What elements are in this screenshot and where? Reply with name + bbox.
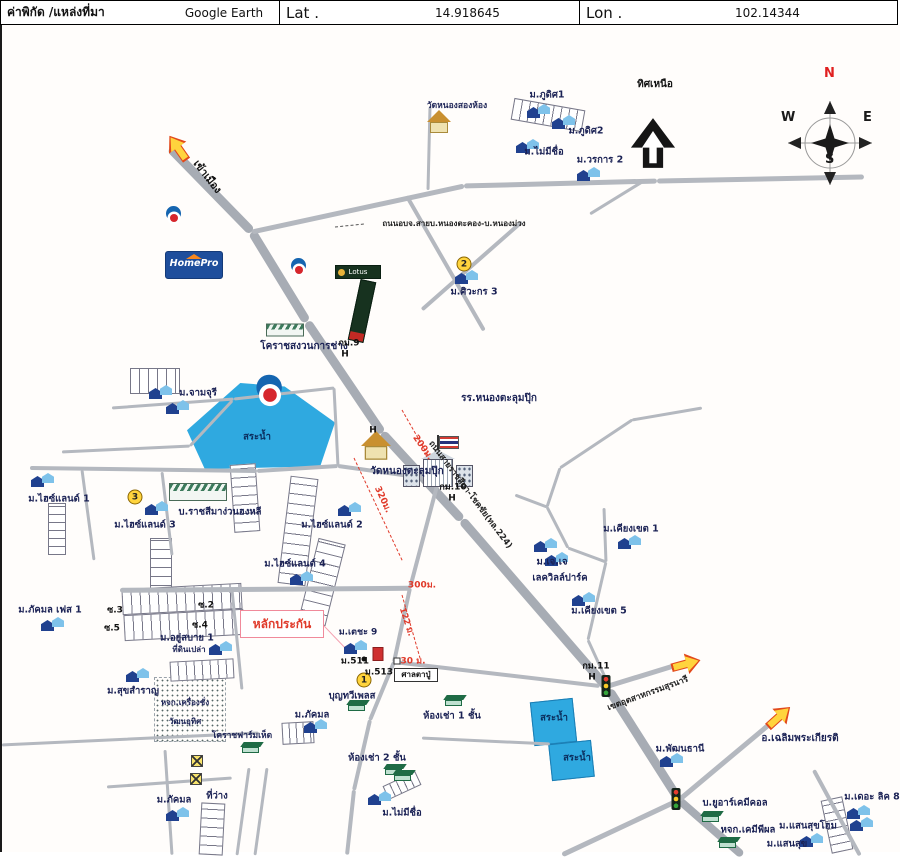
map-label: ม.อยู่สบาย 1 — [160, 633, 214, 643]
factory-icon — [266, 324, 304, 337]
map-road — [333, 388, 340, 466]
transformer-icon — [190, 773, 202, 785]
homepro-logo: HomePro — [165, 251, 223, 279]
map-label: ม.สุขสำราญ — [107, 686, 159, 696]
map-label: ม.ไฮซ์แลนด์ 1 — [28, 494, 89, 504]
map-road — [589, 181, 643, 216]
traffic-light-icon — [602, 675, 611, 697]
map-label: ม.เจ.เจ — [536, 557, 567, 567]
map-label: วัฒนอุทิศ — [169, 718, 201, 726]
red-building-icon — [373, 647, 384, 661]
map-label: ม.เตชะ 9 — [339, 629, 378, 638]
houses-icon — [41, 617, 67, 631]
north-direction-icon — [630, 117, 676, 173]
thai-flag-icon — [439, 436, 459, 449]
houses-icon — [572, 592, 598, 606]
map-label: บ.ราชสีมาง่วนฮงหลี — [179, 507, 262, 517]
coordinates-header: ค่าพิกัด /แหล่งที่มา Google Earth Lat . … — [0, 0, 898, 25]
houses-icon — [344, 640, 370, 654]
map-label: หลักประกัน — [253, 618, 312, 630]
houses-icon — [304, 719, 330, 733]
map-label: ถนนอบจ.สายบ.หนองตะคอง-บ.หนองม่วง — [382, 220, 525, 228]
map-label: ม.ไม่มีชื่อ — [382, 808, 421, 818]
ptt-flame-icon — [255, 370, 286, 411]
map-road — [107, 777, 232, 789]
houses-icon — [290, 571, 316, 585]
ptt-flame-icon — [290, 255, 308, 279]
map-label: เลควิลล์ปาร์ค — [532, 573, 587, 583]
map-road — [62, 445, 190, 454]
map-road — [546, 468, 562, 508]
coords-source-label: ค่าพิกัด /แหล่งที่มา — [1, 1, 169, 24]
map-label: ที่ดินเปล่า — [172, 646, 205, 654]
direction-arrow-icon — [160, 129, 197, 167]
map-label: ศาลตาปู่ — [401, 671, 430, 679]
map-label: 320ม. — [372, 485, 392, 514]
map-road — [514, 494, 547, 509]
houses-icon — [455, 270, 481, 284]
map-label: H — [588, 674, 596, 683]
lotus-sign-post — [348, 279, 377, 343]
map-label: ม.511 — [341, 658, 369, 667]
map-road — [603, 508, 608, 562]
map-label: กม.9 — [338, 340, 359, 349]
map-label: H — [369, 427, 377, 436]
factory-icon — [169, 483, 227, 501]
map-label: ม.ภูดิศ1 — [530, 90, 565, 100]
map-label: ม.ภัคมล เฟส 1 — [18, 605, 82, 615]
green-building-icon — [700, 811, 722, 823]
map-label: ม.ไฮซ์แลนด์ 3 — [114, 520, 175, 530]
map-label: ม.เคียงเขต 5 — [571, 606, 627, 616]
map-label: H — [448, 495, 456, 504]
map-label: 300ม. — [408, 582, 436, 591]
map-label: หจก.เคมีพีผล — [721, 825, 776, 835]
houses-icon — [577, 167, 603, 181]
marker-square — [394, 658, 401, 665]
map-label: ม.แสนสุข — [767, 839, 808, 849]
map-label: หจก.เครื่องชั่ง — [161, 699, 209, 707]
map-road — [335, 224, 364, 228]
map-label: ม.ภัคมล — [295, 710, 330, 720]
houses-icon — [338, 502, 364, 516]
map-road — [632, 407, 703, 422]
green-building-icon — [346, 700, 368, 712]
houses-icon — [368, 791, 394, 805]
map-label: ม.ภัคมล — [157, 795, 192, 805]
map-road — [345, 790, 356, 855]
compass-east-letter: E — [863, 110, 872, 125]
green-building-icon — [392, 770, 414, 782]
map-label: ม.แสนสุขโฮม — [779, 821, 837, 831]
map-label: ม.เดอะ ลิค 8 — [844, 792, 900, 802]
latitude-label: Lat . — [279, 1, 429, 24]
map-label: H — [341, 351, 349, 360]
map-label: ม.วรการ 2 — [577, 155, 623, 165]
map-road — [408, 481, 440, 588]
traffic-light-icon — [672, 788, 681, 810]
map-road — [81, 470, 96, 560]
map-label: ซ.3 — [107, 607, 123, 616]
map-label: สระน้ำ — [563, 753, 591, 763]
map-label: สระน้ำ — [243, 432, 271, 442]
compass-west-letter: W — [781, 110, 795, 125]
map-label: รร.หนองตะลุมปุ๊ก — [461, 394, 537, 404]
compass-north-letter: N — [824, 66, 835, 81]
map-label: วัดหนองตะลุมปุ๊ก — [370, 467, 443, 477]
map-road — [421, 221, 523, 312]
lotus-gold-dot-icon — [338, 269, 345, 276]
houses-icon — [534, 538, 560, 552]
longitude-label: Lon . — [579, 1, 729, 24]
houses-icon — [166, 400, 192, 414]
map-label: 30 ม. — [400, 658, 425, 667]
houses-icon — [126, 668, 152, 682]
map-road — [236, 768, 251, 855]
map-label: ที่ว่าง — [206, 791, 228, 801]
map-label: กม.11 — [582, 663, 609, 672]
map-label: ม.ไฮซ์แลนด์ 4 — [264, 559, 325, 569]
houses-icon — [850, 817, 876, 831]
map-label: ม.จามจุรี — [179, 388, 217, 398]
green-building-icon — [443, 695, 465, 707]
map-label: วัดหนองสองห้อง — [427, 102, 487, 111]
subdivision-grid — [230, 463, 261, 533]
lotus-sign-text: Lotus — [349, 268, 368, 276]
green-building-icon — [717, 837, 739, 849]
subdivision-grid — [170, 658, 235, 681]
transformer-icon — [191, 755, 203, 767]
ptt-flame-icon — [165, 203, 183, 227]
map-road — [561, 798, 680, 858]
map-label: ซ.5 — [104, 625, 120, 634]
map-label: โคราชฟาร์มเห็ด — [212, 732, 272, 741]
compass-rose-icon — [780, 93, 880, 197]
longitude-value: 102.14344 — [729, 1, 897, 24]
map-road — [559, 419, 633, 469]
map-label: บ.ยูอาร์เคมีคอล — [702, 798, 767, 808]
subdivision-grid — [199, 802, 226, 855]
subdivision-grid — [48, 503, 66, 555]
houses-icon — [166, 807, 192, 821]
route-badge: 3 — [128, 490, 143, 505]
map-label: ม.พัฒนธานี — [656, 744, 705, 754]
temple-icon — [427, 109, 451, 135]
map-label: สระน้ำ — [540, 713, 568, 723]
green-building-icon — [240, 742, 262, 754]
houses-icon — [149, 385, 175, 399]
houses-icon — [660, 753, 686, 767]
map-label: บุญทวีเพลส — [329, 691, 376, 701]
map-road — [464, 179, 657, 189]
map-road — [254, 768, 269, 855]
map-label: ม.ภูดิศ2 — [569, 126, 604, 136]
houses-icon — [618, 535, 644, 549]
map-road — [120, 586, 410, 592]
houses-icon — [527, 104, 553, 118]
map-road — [567, 547, 606, 564]
map-label: ม.ไฮซ์แลนด์ 2 — [301, 520, 362, 530]
map-label: ม.513 — [365, 669, 393, 678]
map-label: ห้องเช่า 2 ชั้น — [348, 753, 406, 763]
map-label: อ.เฉลิมพระเกียรติ — [761, 734, 838, 744]
compass-south-letter: S — [825, 152, 834, 167]
map-label: ม.ศิวะกร 3 — [450, 287, 497, 297]
map-label: ซ.2 — [198, 602, 214, 611]
map-label: ทิศเหนือ — [637, 80, 673, 90]
map-label: ห้องเช่า 1 ชั้น — [423, 711, 481, 721]
latitude-value: 14.918645 — [429, 1, 579, 24]
map-label: ซ.4 — [192, 622, 208, 631]
map-label: ม.เคียงเขต 1 — [603, 524, 659, 534]
houses-icon — [145, 501, 171, 515]
map-label: โคราชสงวนการช่าง — [260, 342, 348, 352]
homepro-logo-text: HomePro — [166, 259, 222, 269]
map-road — [422, 737, 550, 746]
coords-source-value: Google Earth — [169, 1, 279, 24]
map-road — [677, 716, 778, 802]
houses-icon — [31, 473, 57, 487]
lotus-sign: Lotus — [335, 265, 381, 279]
hand-drawn-location-map: HomePro Lotus N W E S 231เข้าเมือ — [0, 25, 900, 852]
map-label: ม.ไม่มีชื่อ — [524, 147, 563, 157]
